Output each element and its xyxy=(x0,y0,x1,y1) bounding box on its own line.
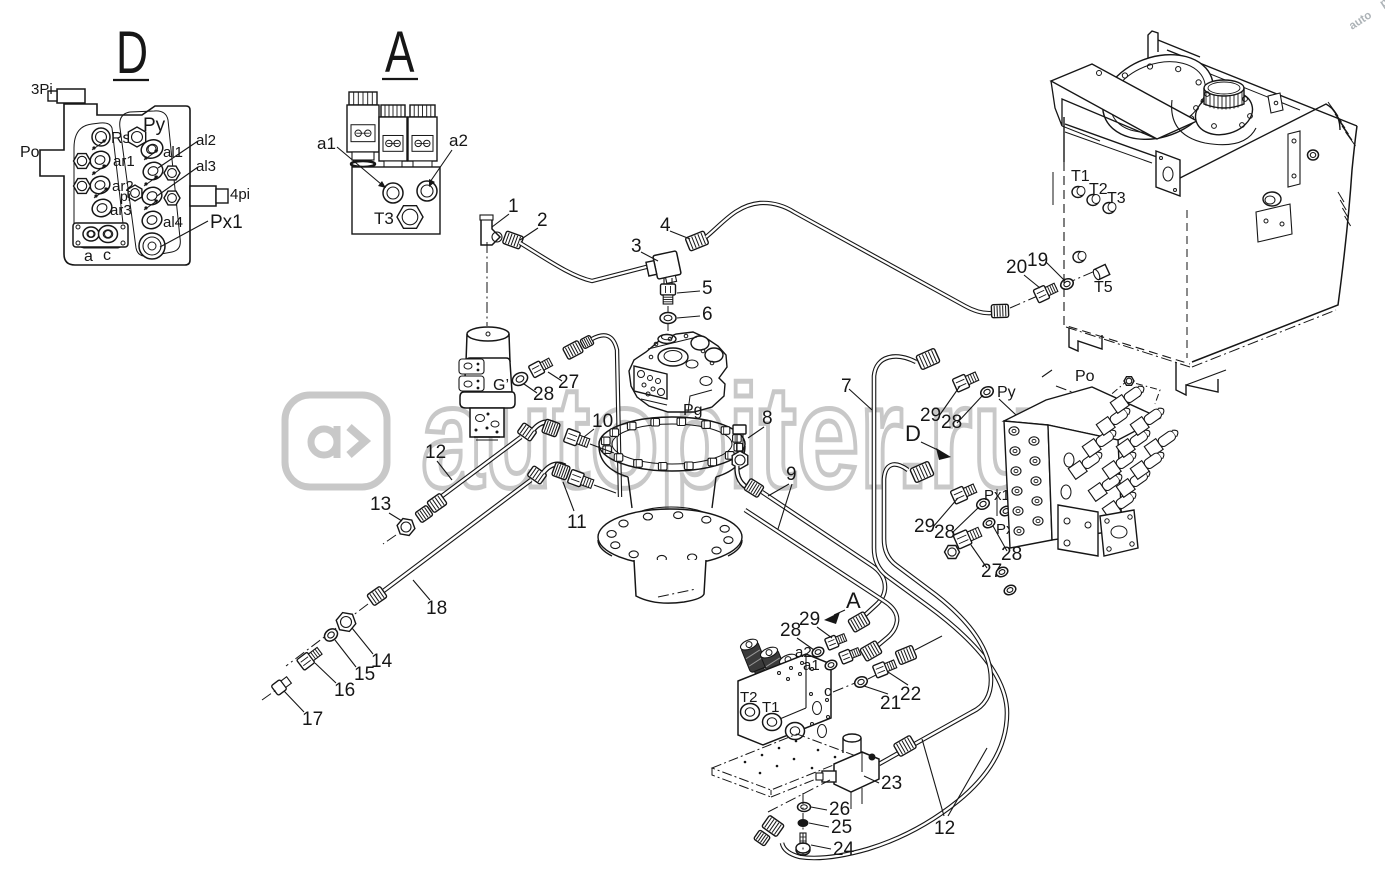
svg-text:a: a xyxy=(84,248,93,265)
svg-text:Py: Py xyxy=(997,384,1016,401)
svg-text:al2: al2 xyxy=(196,132,216,149)
svg-text:22: 22 xyxy=(900,684,921,705)
svg-text:4pi: 4pi xyxy=(230,186,250,203)
svg-text:12: 12 xyxy=(425,442,446,463)
svg-text:D: D xyxy=(905,421,921,446)
svg-text:27: 27 xyxy=(558,372,579,393)
svg-text:Py: Py xyxy=(143,115,166,136)
svg-text:D: D xyxy=(116,20,148,87)
svg-text:ar1: ar1 xyxy=(113,153,135,170)
svg-text:29: 29 xyxy=(914,516,935,537)
svg-text:2: 2 xyxy=(537,210,548,231)
svg-text:7: 7 xyxy=(841,376,852,397)
svg-text:Po: Po xyxy=(20,144,40,161)
svg-text:29: 29 xyxy=(920,405,941,426)
svg-text:T3: T3 xyxy=(374,209,394,228)
svg-text:20: 20 xyxy=(1006,257,1027,278)
svg-text:24: 24 xyxy=(833,839,855,860)
svg-text:al4: al4 xyxy=(163,214,183,231)
svg-text:Po: Po xyxy=(1075,368,1095,385)
svg-text:T1: T1 xyxy=(762,699,780,716)
svg-text:c: c xyxy=(824,683,832,700)
svg-text:18: 18 xyxy=(426,598,447,619)
svg-text:9: 9 xyxy=(786,464,797,485)
svg-text:16: 16 xyxy=(334,680,355,701)
svg-text:A: A xyxy=(385,19,415,84)
svg-text:Pg: Pg xyxy=(683,402,703,419)
svg-text:17: 17 xyxy=(302,709,323,730)
svg-text:6: 6 xyxy=(702,304,713,325)
svg-text:3Pi: 3Pi xyxy=(31,81,53,98)
svg-text:12: 12 xyxy=(934,818,955,839)
svg-text:29: 29 xyxy=(799,609,820,630)
svg-text:5: 5 xyxy=(702,278,713,299)
svg-text:a2: a2 xyxy=(449,131,468,150)
svg-text:ar3: ar3 xyxy=(110,202,132,219)
svg-text:28: 28 xyxy=(941,412,962,433)
svg-text:23: 23 xyxy=(881,773,902,794)
svg-text:T3: T3 xyxy=(1107,190,1126,207)
svg-text:13: 13 xyxy=(370,494,391,515)
svg-text:c: c xyxy=(103,247,111,264)
svg-text:3: 3 xyxy=(631,236,642,257)
svg-text:T1: T1 xyxy=(1071,168,1090,185)
svg-text:19: 19 xyxy=(1027,250,1048,271)
svg-text:28: 28 xyxy=(780,620,801,641)
svg-text:al3: al3 xyxy=(196,158,216,175)
svg-text:a1: a1 xyxy=(803,657,820,674)
svg-text:a1: a1 xyxy=(317,134,336,153)
svg-text:4: 4 xyxy=(660,215,671,236)
svg-text:8: 8 xyxy=(762,408,773,429)
svg-text:A: A xyxy=(846,588,861,613)
svg-text:T2: T2 xyxy=(1089,181,1108,198)
svg-text:T5: T5 xyxy=(1094,279,1113,296)
svg-text:28: 28 xyxy=(533,384,554,405)
svg-text:T2: T2 xyxy=(740,689,758,706)
svg-text:21: 21 xyxy=(880,693,901,714)
svg-text:10: 10 xyxy=(592,411,613,432)
svg-text:15: 15 xyxy=(354,664,375,685)
svg-text:11: 11 xyxy=(567,512,587,533)
svg-text:Px1: Px1 xyxy=(210,212,243,233)
svg-text:1: 1 xyxy=(508,196,519,217)
svg-text:25: 25 xyxy=(831,817,852,838)
